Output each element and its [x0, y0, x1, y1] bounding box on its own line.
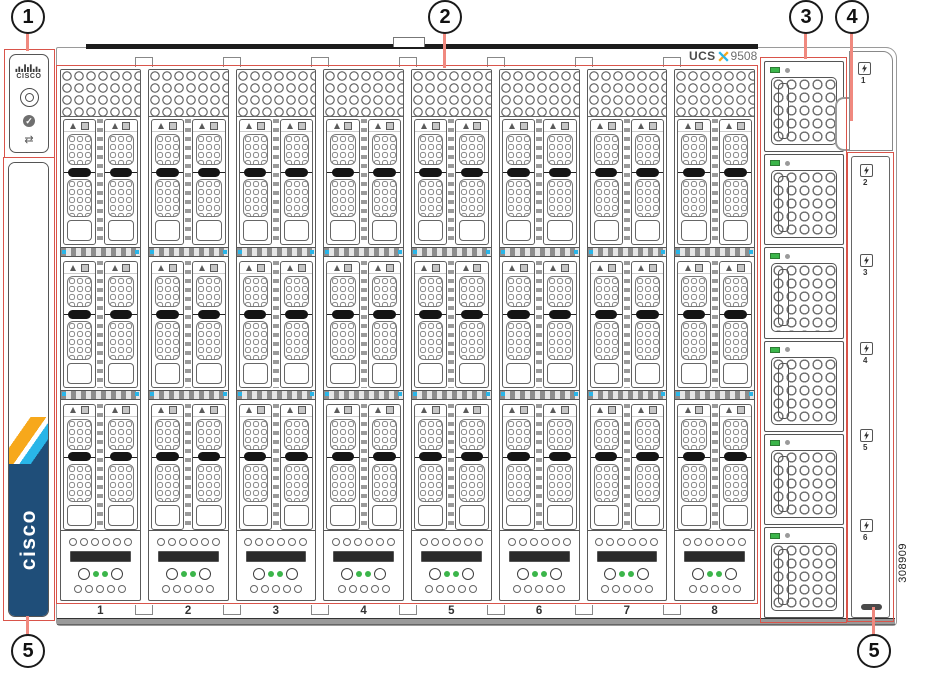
psu-bay-label: 1 — [858, 62, 871, 85]
warning-icon — [638, 123, 644, 129]
drive-vent — [108, 464, 133, 502]
drive-bay-section — [588, 402, 667, 530]
bay-rail — [273, 404, 279, 530]
callout-3: 3 — [789, 0, 823, 34]
drive-vent — [459, 134, 484, 165]
activity-icon — [737, 264, 745, 272]
activity-icon — [432, 406, 440, 414]
drive-indicators — [64, 120, 95, 132]
activity-icon — [298, 122, 306, 130]
node-vent-grille — [61, 70, 140, 117]
drive-vent — [635, 134, 660, 165]
drive-pull-tab — [547, 363, 572, 384]
compute-node-slot — [148, 69, 229, 601]
drive-vent — [418, 179, 443, 217]
drive-latch — [456, 309, 487, 319]
drive-bay-section — [61, 259, 140, 387]
activity-icon — [561, 122, 569, 130]
activity-icon — [649, 406, 657, 414]
activity-icon — [386, 264, 394, 272]
drive-module — [719, 404, 752, 530]
drive-vent — [108, 134, 133, 165]
chassis-front-diagram: UCS 9508 CISCO ✓ ⇄ — [0, 0, 926, 675]
drive-bay-section — [61, 402, 140, 530]
activity-icon — [257, 264, 265, 272]
bay-rail — [185, 119, 191, 245]
warning-icon — [112, 407, 118, 413]
section-divider — [237, 390, 316, 400]
activity-icon — [520, 122, 528, 130]
section-divider — [149, 247, 228, 257]
drive-indicators — [456, 262, 487, 274]
drive-vent — [108, 419, 133, 450]
warning-icon — [158, 123, 164, 129]
power-led — [707, 571, 713, 577]
drive-bay-section — [61, 117, 140, 245]
warning-icon — [597, 265, 603, 271]
drive-vent — [155, 321, 180, 359]
drive-bay-section — [500, 117, 579, 245]
drive-vent — [67, 321, 92, 359]
warning-icon — [70, 123, 76, 129]
io-knob — [462, 568, 474, 580]
drive-bay-section — [412, 402, 491, 530]
node-sections — [61, 117, 140, 530]
drive-vent — [418, 134, 443, 165]
node-sections — [588, 117, 667, 530]
node-io-panel — [500, 530, 579, 600]
drive-latch — [632, 309, 663, 319]
node-io-panel — [324, 530, 403, 600]
drive-indicators — [544, 262, 575, 274]
io-knob — [111, 568, 123, 580]
drive-bay-section — [412, 117, 491, 245]
drive-indicators — [632, 120, 663, 132]
io-knob — [550, 568, 562, 580]
drive-module — [368, 261, 401, 387]
node-vent-grille — [588, 70, 667, 117]
warning-icon — [726, 407, 732, 413]
psu-module — [764, 527, 844, 618]
psu-status — [765, 248, 843, 261]
activity-icon — [386, 122, 394, 130]
compute-node-slot — [587, 69, 668, 601]
activity-led — [453, 571, 459, 577]
warning-icon — [112, 265, 118, 271]
section-divider — [412, 247, 491, 257]
activity-icon — [608, 264, 616, 272]
psu-bay-number: 5 — [860, 443, 867, 452]
drive-vent — [635, 179, 660, 217]
drive-indicators — [544, 120, 575, 132]
drive-vent — [459, 179, 484, 217]
drive-indicators — [152, 262, 183, 274]
io-vent-row — [327, 538, 400, 546]
drive-module — [104, 404, 137, 530]
drive-indicators — [369, 120, 400, 132]
node-io-panel — [412, 530, 491, 600]
product-label-brand: UCS — [689, 49, 716, 63]
drive-module — [239, 261, 272, 387]
warning-icon — [597, 123, 603, 129]
psu-grille — [771, 263, 837, 331]
drive-pull-tab — [459, 363, 484, 384]
warning-icon — [509, 265, 515, 271]
drive-vent — [547, 419, 572, 450]
warning-icon — [463, 265, 469, 271]
chassis-guide-tab — [575, 605, 593, 615]
activity-icon — [344, 406, 352, 414]
drive-pull-tab — [372, 505, 397, 526]
warning-icon — [685, 407, 691, 413]
drive-latch — [105, 452, 136, 462]
activity-icon — [695, 122, 703, 130]
drive-vent — [196, 321, 221, 359]
drive-vent — [196, 464, 221, 502]
chassis-guide-tab — [575, 57, 593, 67]
drive-indicators — [369, 405, 400, 417]
psu-bay-label: 5 — [860, 429, 873, 452]
drive-module — [104, 119, 137, 245]
psu-bay-label: 4 — [860, 342, 873, 365]
drive-module — [326, 404, 359, 530]
callout-leader-1 — [26, 31, 29, 51]
drive-vent — [372, 419, 397, 450]
drive-module — [368, 404, 401, 530]
drive-pull-tab — [635, 505, 660, 526]
drive-module — [192, 404, 225, 530]
status-led-icon: ✓ — [23, 115, 35, 127]
bay-rail — [361, 119, 367, 245]
drive-module — [280, 261, 313, 387]
node-sections — [675, 117, 754, 530]
drive-bay-section — [237, 259, 316, 387]
drive-indicators — [456, 120, 487, 132]
drive-pull-tab — [459, 220, 484, 241]
compute-node-slot — [323, 69, 404, 601]
activity-icon — [122, 264, 130, 272]
warning-icon — [550, 407, 556, 413]
drive-bay-section — [237, 117, 316, 245]
drive-vent — [723, 134, 748, 165]
drive-latch — [193, 452, 224, 462]
network-link-icon: ⇄ — [24, 135, 33, 145]
drive-vent — [67, 276, 92, 307]
drive-module — [239, 119, 272, 245]
section-divider — [675, 390, 754, 400]
bay-rail — [712, 404, 718, 530]
bay-rail — [536, 404, 542, 530]
psu-bay-number: 1 — [858, 76, 865, 85]
chassis-guide-tab — [487, 57, 505, 67]
drive-module — [192, 261, 225, 387]
drive-vent — [330, 321, 355, 359]
bay-rail — [448, 404, 454, 530]
io-vent-row — [503, 538, 576, 546]
bay-rail — [97, 261, 103, 387]
drive-vent — [418, 321, 443, 359]
drive-vent — [459, 464, 484, 502]
drive-indicators — [193, 262, 224, 274]
warning-icon — [550, 123, 556, 129]
drive-vent — [108, 321, 133, 359]
io-knob — [286, 568, 298, 580]
drive-vent — [594, 321, 619, 359]
warning-icon — [421, 407, 427, 413]
io-vent-row — [415, 585, 488, 593]
drive-vent — [372, 179, 397, 217]
drive-pull-tab — [506, 363, 531, 384]
drive-indicators — [415, 262, 446, 274]
io-vent-row — [240, 538, 313, 546]
drive-latch — [544, 452, 575, 462]
drive-indicators — [152, 120, 183, 132]
warning-icon — [158, 265, 164, 271]
drive-latch — [327, 309, 358, 319]
drive-vent — [547, 321, 572, 359]
psu-fault-led — [785, 440, 790, 445]
warning-icon — [334, 265, 340, 271]
callout-2: 2 — [428, 0, 462, 34]
io-led-row — [415, 568, 488, 580]
io-knob — [341, 568, 353, 580]
warning-icon — [685, 265, 691, 271]
power-led — [532, 571, 538, 577]
drive-bay-section — [412, 259, 491, 387]
chassis-guide-tab — [663, 605, 681, 615]
drive-pull-tab — [459, 505, 484, 526]
oculink-connector — [246, 551, 307, 562]
section-divider — [412, 390, 491, 400]
bay-rail — [712, 261, 718, 387]
drive-indicators — [678, 262, 709, 274]
activity-icon — [432, 122, 440, 130]
drive-vent — [372, 134, 397, 165]
drive-vent — [459, 276, 484, 307]
warning-icon — [638, 407, 644, 413]
activity-icon — [695, 406, 703, 414]
bay-rail — [361, 261, 367, 387]
drive-latch — [632, 167, 663, 177]
activity-icon — [561, 264, 569, 272]
bay-rail — [273, 119, 279, 245]
drive-pull-tab — [372, 363, 397, 384]
drive-pull-tab — [284, 363, 309, 384]
bay-rail — [185, 261, 191, 387]
node-vent-grille — [500, 70, 579, 117]
drive-pull-tab — [155, 505, 180, 526]
drive-bay-section — [675, 402, 754, 530]
section-divider — [588, 247, 667, 257]
warning-icon — [685, 123, 691, 129]
activity-icon — [257, 122, 265, 130]
drive-pull-tab — [67, 220, 92, 241]
drive-module — [151, 404, 184, 530]
activity-icon — [649, 122, 657, 130]
activity-icon — [344, 264, 352, 272]
drive-vent — [547, 179, 572, 217]
drive-indicators — [105, 120, 136, 132]
drive-module — [631, 119, 664, 245]
bay-rail — [536, 119, 542, 245]
brand-diagonal-stripes — [9, 417, 48, 464]
drive-module — [543, 404, 576, 530]
drive-indicators — [415, 405, 446, 417]
cisco-logo: CISCO — [15, 63, 43, 80]
drive-pull-tab — [155, 363, 180, 384]
drive-vent — [196, 419, 221, 450]
drive-pull-tab — [243, 220, 268, 241]
drive-vent — [155, 276, 180, 307]
drive-pull-tab — [330, 505, 355, 526]
activity-icon — [432, 264, 440, 272]
brand-blue-panel: cisco — [9, 464, 48, 616]
drive-latch — [503, 309, 534, 319]
drive-latch — [240, 309, 271, 319]
chassis-guide-tab — [223, 57, 241, 67]
node-io-panel — [588, 530, 667, 600]
drive-latch — [591, 167, 622, 177]
compute-node-slot — [236, 69, 317, 601]
activity-led — [628, 571, 634, 577]
section-divider — [500, 247, 579, 257]
drive-module — [677, 261, 710, 387]
drive-pull-tab — [418, 363, 443, 384]
drive-module — [590, 261, 623, 387]
io-led-row — [64, 568, 137, 580]
drive-latch — [415, 309, 446, 319]
drive-indicators — [152, 405, 183, 417]
power-led — [619, 571, 625, 577]
io-vent-row — [64, 538, 137, 546]
warning-icon — [246, 407, 252, 413]
callout-leader-4 — [850, 31, 853, 121]
warning-icon — [199, 407, 205, 413]
io-led-row — [503, 568, 576, 580]
drive-vent — [196, 179, 221, 217]
activity-icon — [608, 406, 616, 414]
psu-fault-led — [785, 533, 790, 538]
drive-pull-tab — [243, 363, 268, 384]
drive-vent — [506, 179, 531, 217]
drive-latch — [369, 452, 400, 462]
drive-bay-section — [588, 117, 667, 245]
compute-node-slot — [674, 69, 755, 601]
io-vent-row — [152, 538, 225, 546]
drive-vent — [547, 134, 572, 165]
node-vent-grille — [149, 70, 228, 117]
drive-vent — [155, 179, 180, 217]
slot-number-label: 4 — [323, 605, 404, 617]
drive-indicators — [281, 120, 312, 132]
drive-vent — [372, 464, 397, 502]
section-divider — [61, 247, 140, 257]
figure-number: 308909 — [897, 543, 909, 583]
drive-module — [104, 261, 137, 387]
drive-module — [455, 404, 488, 530]
drive-latch — [456, 452, 487, 462]
io-knob — [78, 568, 90, 580]
drive-vent — [243, 321, 268, 359]
warning-icon — [199, 123, 205, 129]
activity-icon — [737, 122, 745, 130]
io-vent-row — [678, 538, 751, 546]
drive-vent — [155, 419, 180, 450]
psu-bay-number: 2 — [860, 178, 867, 187]
bay-rail — [361, 404, 367, 530]
node-sections — [149, 117, 228, 530]
drive-pull-tab — [284, 220, 309, 241]
drive-pull-tab — [67, 505, 92, 526]
warning-icon — [421, 265, 427, 271]
psu-fault-led — [785, 254, 790, 259]
bay-rail — [624, 261, 630, 387]
drive-bay-section — [324, 402, 403, 530]
drive-vent — [67, 134, 92, 165]
drive-module — [151, 261, 184, 387]
psu-ok-led — [770, 160, 780, 166]
drive-module — [280, 119, 313, 245]
activity-icon — [122, 122, 130, 130]
callout-leader-5-left — [26, 616, 29, 636]
psu-status — [765, 62, 843, 75]
drive-vent — [330, 276, 355, 307]
oculink-connector — [158, 551, 219, 562]
power-led — [93, 571, 99, 577]
section-divider — [500, 390, 579, 400]
drive-vent — [418, 419, 443, 450]
drive-pull-tab — [547, 505, 572, 526]
io-knob — [637, 568, 649, 580]
drive-latch — [193, 167, 224, 177]
chassis-guide-tab — [135, 605, 153, 615]
drive-module — [631, 404, 664, 530]
drive-latch — [503, 167, 534, 177]
drive-latch — [64, 452, 95, 462]
oculink-connector — [421, 551, 482, 562]
drive-vent — [196, 134, 221, 165]
drive-vent — [155, 134, 180, 165]
bay-rail — [448, 261, 454, 387]
drive-latch — [152, 452, 183, 462]
drive-vent — [723, 276, 748, 307]
x-series-icon — [718, 51, 729, 62]
drive-module — [543, 119, 576, 245]
compute-node-slot — [60, 69, 141, 601]
warning-icon — [199, 265, 205, 271]
bay-rail — [624, 404, 630, 530]
drive-vent — [284, 179, 309, 217]
callout-1: 1 — [11, 0, 45, 34]
power-led — [181, 571, 187, 577]
warning-icon — [334, 123, 340, 129]
activity-led — [277, 571, 283, 577]
psu-module — [764, 154, 844, 245]
psu-ok-led — [770, 253, 780, 259]
drive-latch — [678, 167, 709, 177]
drive-module — [590, 119, 623, 245]
drive-module — [414, 119, 447, 245]
drive-indicators — [591, 120, 622, 132]
psu-status — [765, 155, 843, 168]
drive-vent — [67, 419, 92, 450]
drive-bay-section — [324, 259, 403, 387]
drive-latch — [720, 452, 751, 462]
drive-indicators — [240, 262, 271, 274]
node-sections — [412, 117, 491, 530]
drive-vent — [594, 419, 619, 450]
drive-bay-section — [675, 117, 754, 245]
